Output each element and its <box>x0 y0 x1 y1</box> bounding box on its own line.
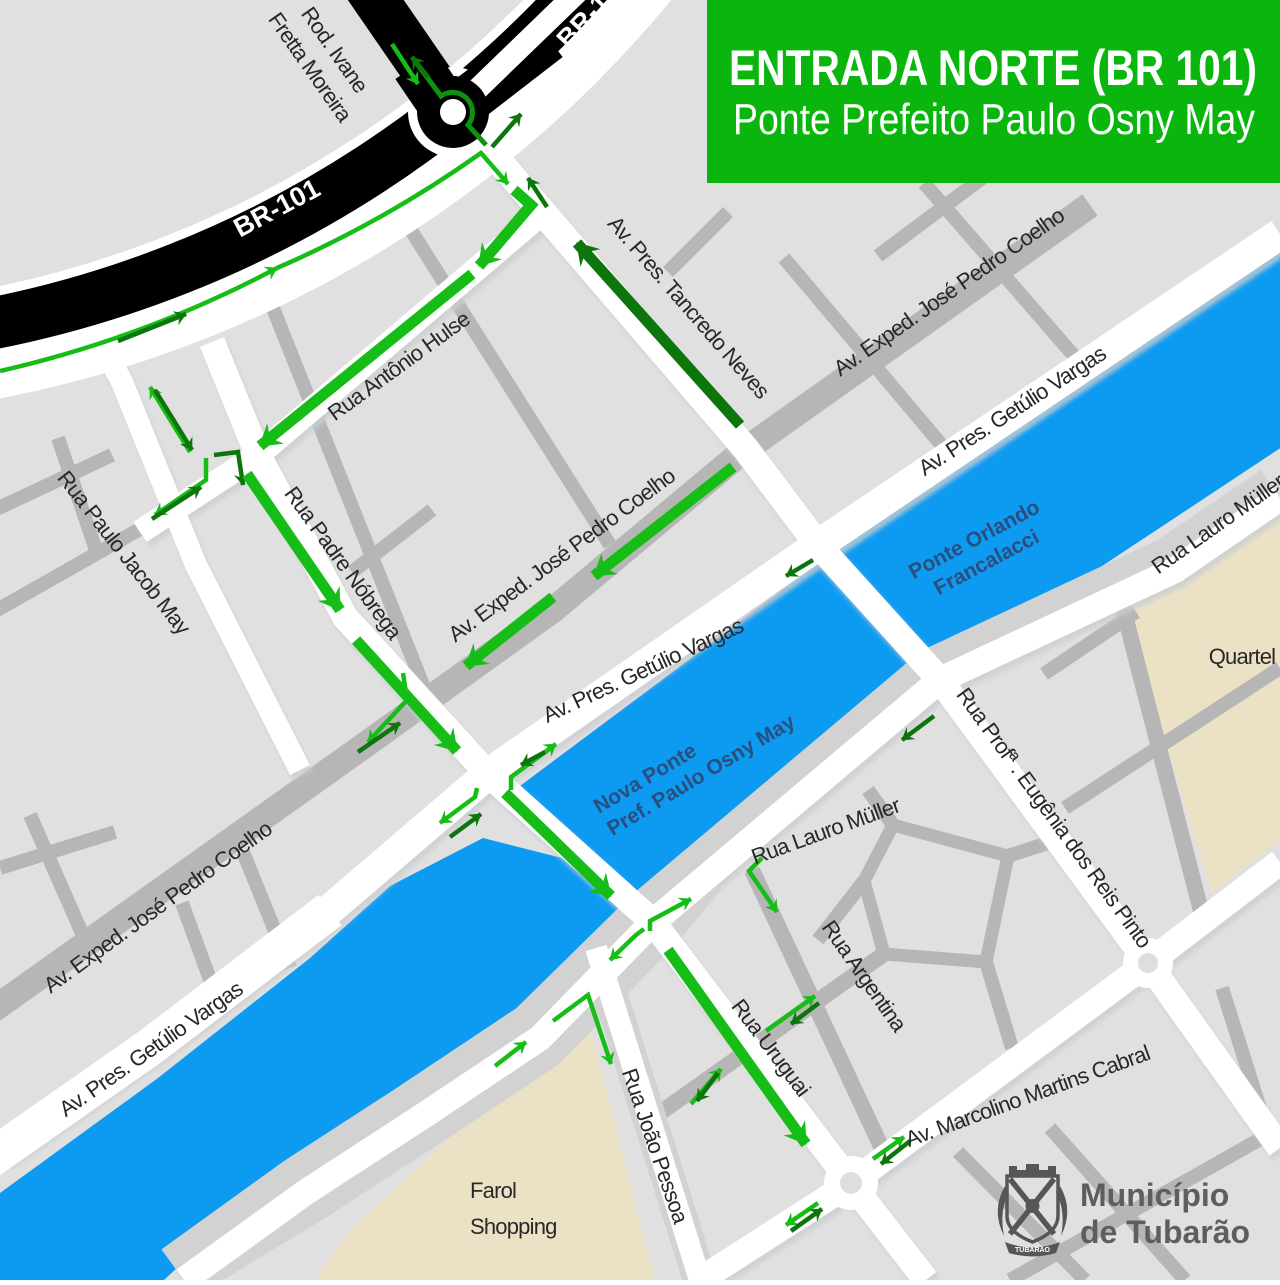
svg-text:Shopping: Shopping <box>470 1214 557 1239</box>
svg-text:ENTRADA NORTE (BR 101): ENTRADA NORTE (BR 101) <box>729 40 1257 96</box>
svg-text:TUBARÃO: TUBARÃO <box>1015 1245 1051 1254</box>
svg-text:Ponte Prefeito Paulo Osny May: Ponte Prefeito Paulo Osny May <box>733 95 1255 144</box>
svg-text:Farol: Farol <box>470 1178 516 1203</box>
svg-text:Quartel: Quartel <box>1209 644 1276 669</box>
svg-text:Município: Município <box>1080 1177 1229 1213</box>
svg-text:de Tubarão: de Tubarão <box>1080 1214 1250 1250</box>
